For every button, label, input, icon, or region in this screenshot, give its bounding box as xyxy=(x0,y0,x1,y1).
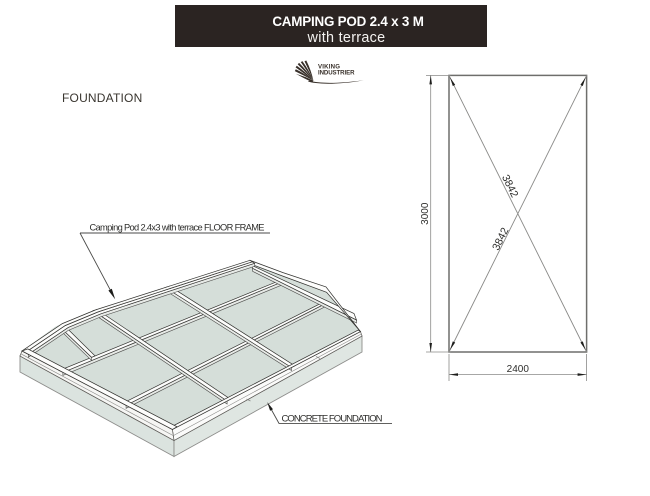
svg-text:2400: 2400 xyxy=(507,364,530,375)
svg-text:3842: 3842 xyxy=(499,173,520,200)
svg-text:3000: 3000 xyxy=(420,202,431,225)
svg-text:CONCRETE FOUNDATION: CONCRETE FOUNDATION xyxy=(282,414,383,425)
svg-text:Camping Pod 2.4x3 with terrace: Camping Pod 2.4x3 with terrace FLOOR FRA… xyxy=(90,223,265,233)
svg-text:3842: 3842 xyxy=(490,226,511,253)
svg-text:INDUSTRIER: INDUSTRIER xyxy=(318,70,355,77)
